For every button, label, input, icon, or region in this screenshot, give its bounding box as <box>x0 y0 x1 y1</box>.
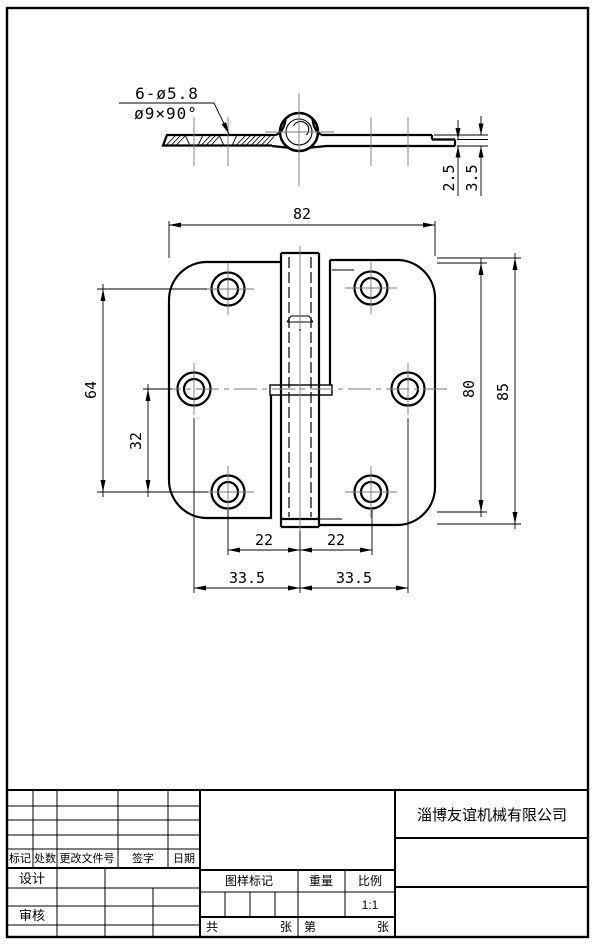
col-sign-label: 签字 <box>132 851 154 865</box>
dim-22-left: 22 <box>255 531 273 549</box>
side-view: 6-ø5.8 ø9×90° 2.5 3.5 <box>119 84 488 196</box>
drawing-info-grid: 图样标记 重量 比例 1:1 共 张 第 张 <box>200 870 395 937</box>
col-doc-label: 更改文件号 <box>60 851 115 865</box>
hole-bottom-right <box>345 466 397 518</box>
pattern-mark-label: 图样标记 <box>225 873 273 888</box>
middle-joint-band <box>270 385 332 395</box>
revision-grid: 标记 处数 更改文件号 签字 日期 设计 审核 <box>7 790 200 937</box>
right-plate-outline <box>322 135 455 146</box>
screw-holes <box>178 262 425 518</box>
left-leaf <box>169 262 281 518</box>
col-date-label: 日期 <box>173 852 195 865</box>
hole-note-line1: 6-ø5.8 <box>135 84 199 103</box>
dim-82: 82 <box>293 205 311 223</box>
dim-total-height-group: 85 <box>437 253 521 529</box>
dim-3-5: 3.5 <box>463 164 481 191</box>
thickness-dimensions: 2.5 3.5 <box>434 116 488 196</box>
sheet-no-unit: 张 <box>377 920 389 934</box>
scale-label: 比例 <box>358 874 382 888</box>
dim-leaf-height-group: 80 <box>437 258 487 517</box>
title-block: 标记 处数 更改文件号 签字 日期 设计 审核 图样标记 重量 比例 1:1 共… <box>7 790 588 937</box>
weight-label: 重量 <box>309 874 333 888</box>
company-section: 淄博友谊机械有限公司 <box>395 807 588 887</box>
front-dimensions: 82 64 32 80 <box>82 205 521 593</box>
dim-hole-half-group: 32 <box>127 384 172 497</box>
scale-value: 1:1 <box>362 898 379 912</box>
hole-note-line2: ø9×90° <box>134 104 198 123</box>
dim-33-5-right: 33.5 <box>336 569 372 587</box>
sheet-frame <box>7 8 588 937</box>
knuckle-column <box>270 253 332 527</box>
engineering-drawing: 6-ø5.8 ø9×90° 2.5 3.5 <box>0 0 600 945</box>
company-name: 淄博友谊机械有限公司 <box>417 807 567 824</box>
hole-top-left <box>202 263 254 315</box>
side-view-centerlines <box>194 93 408 186</box>
dim-32: 32 <box>127 432 145 450</box>
dim-hole-span-group: 64 <box>82 284 208 497</box>
dim-80: 80 <box>460 380 478 398</box>
sheets-total-unit: 张 <box>280 920 292 934</box>
drawing-sheet: 6-ø5.8 ø9×90° 2.5 3.5 <box>0 0 600 945</box>
dim-22-right: 22 <box>327 531 345 549</box>
dim-mid-offset-group: 33.5 33.5 <box>194 418 408 593</box>
sheets-total-label: 共 <box>206 920 218 934</box>
dim-width-group: 82 <box>169 205 435 258</box>
dim-64: 64 <box>82 381 100 399</box>
design-label: 设计 <box>19 871 45 886</box>
col-qty-label: 处数 <box>34 852 56 865</box>
hole-note: 6-ø5.8 ø9×90° <box>119 84 229 134</box>
dim-2-5: 2.5 <box>440 164 458 191</box>
dim-33-5-left: 33.5 <box>229 569 265 587</box>
sheet-no-label: 第 <box>304 920 316 934</box>
audit-label: 审核 <box>19 908 45 923</box>
dim-85: 85 <box>494 383 512 401</box>
col-mark-label: 标记 <box>9 851 31 865</box>
